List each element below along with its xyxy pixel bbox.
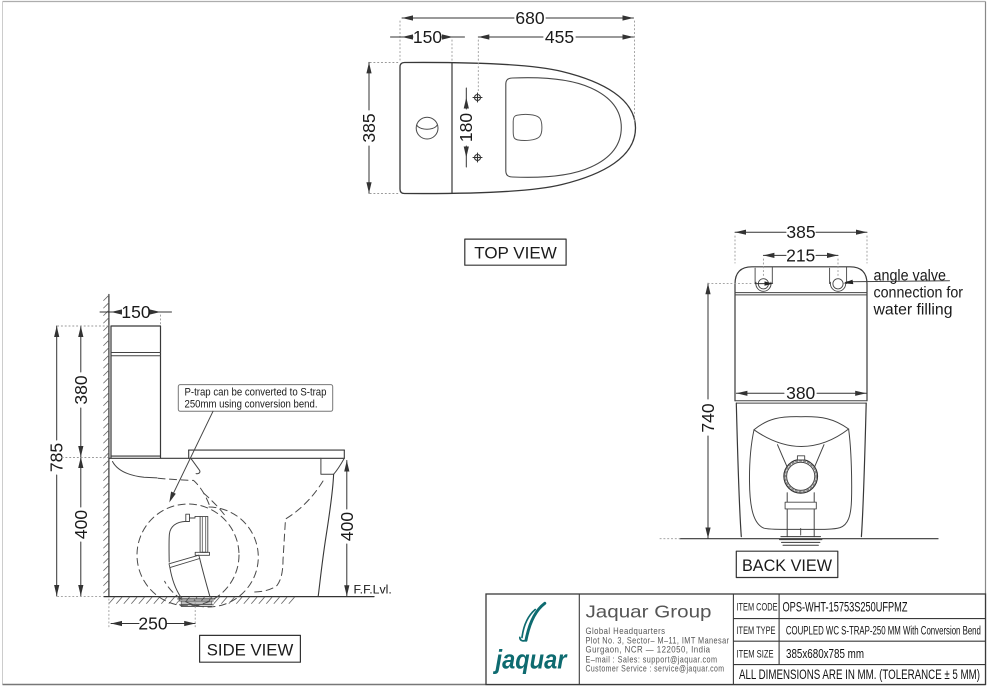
svg-text:ITEM CODE: ITEM CODE — [737, 601, 778, 613]
svg-text:ALL DIMENSIONS ARE IN MM. (TOL: ALL DIMENSIONS ARE IN MM. (TOLERANCE ± 5… — [739, 667, 980, 682]
svg-text:SIDE VIEW: SIDE VIEW — [207, 640, 294, 659]
svg-text:380: 380 — [71, 375, 91, 404]
svg-text:215: 215 — [786, 245, 815, 265]
svg-text:785: 785 — [47, 443, 67, 472]
svg-text:150: 150 — [121, 302, 150, 322]
svg-text:OPS-WHT-15753S250UFPMZ: OPS-WHT-15753S250UFPMZ — [783, 599, 908, 615]
svg-text:TOP VIEW: TOP VIEW — [474, 244, 557, 263]
svg-text:F.F.Lvl.: F.F.Lvl. — [354, 583, 392, 597]
svg-text:ITEM TYPE: ITEM TYPE — [737, 625, 776, 637]
svg-text:ITEM SIZE: ITEM SIZE — [737, 648, 774, 660]
svg-text:jaquar: jaquar — [493, 645, 568, 675]
svg-text:680: 680 — [515, 8, 544, 28]
svg-text:water filling: water filling — [872, 302, 952, 319]
svg-text:400: 400 — [337, 512, 357, 541]
svg-text:COUPLED WC S-TRAP-250 MM With: COUPLED WC S-TRAP-250 MM With Conversion… — [786, 625, 981, 637]
svg-text:250: 250 — [138, 614, 167, 634]
svg-text:400: 400 — [71, 510, 91, 539]
svg-text:740: 740 — [698, 403, 718, 432]
svg-text:P-trap can be converted to S-t: P-trap can be converted to S-trap — [185, 386, 327, 398]
svg-text:385x680x785 mm: 385x680x785 mm — [786, 647, 864, 661]
svg-text:150: 150 — [413, 27, 442, 47]
svg-text:380: 380 — [786, 383, 815, 403]
svg-text:Gurgaon, NCR — 122050, India: Gurgaon, NCR — 122050, India — [586, 645, 711, 655]
svg-text:385: 385 — [359, 113, 379, 142]
svg-text:Customer Service : service@jaq: Customer Service : service@jaquar.com — [586, 664, 725, 674]
svg-text:angle valve: angle valve — [874, 268, 947, 285]
svg-text:Jaquar Group: Jaquar Group — [586, 601, 712, 621]
svg-text:connection for: connection for — [874, 285, 964, 302]
svg-text:385: 385 — [786, 222, 815, 242]
svg-text:BACK VIEW: BACK VIEW — [742, 556, 832, 575]
svg-text:250mm using conversion bend.: 250mm using conversion bend. — [185, 399, 318, 411]
svg-text:180: 180 — [456, 113, 476, 142]
svg-text:455: 455 — [545, 27, 574, 47]
